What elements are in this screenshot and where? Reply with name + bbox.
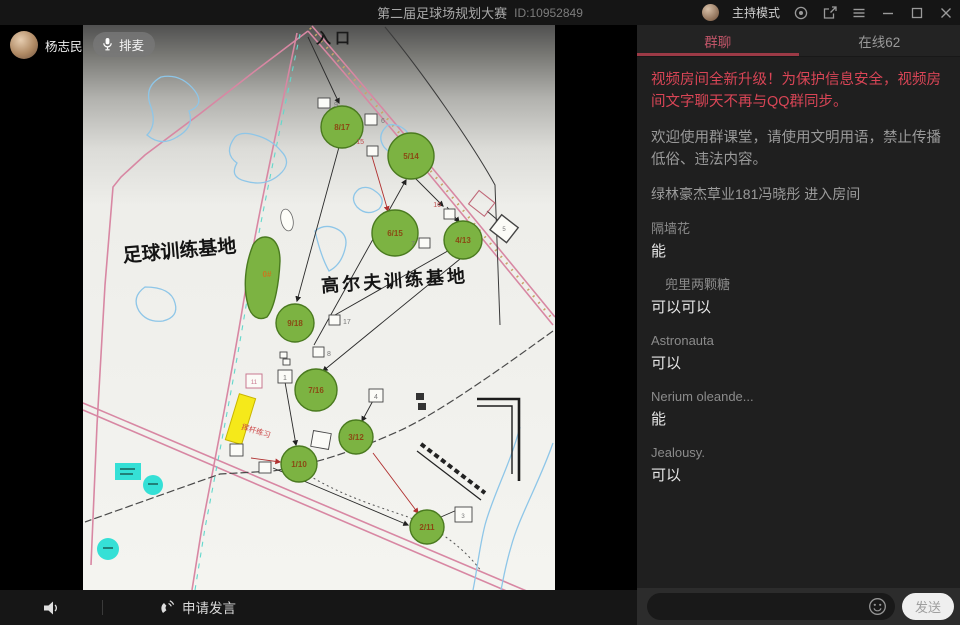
tee-label: 6 [381,118,385,125]
maximize-icon[interactable] [909,5,925,21]
hole-label: 6/15 [387,229,403,238]
host-mode-label: 主持模式 [732,4,780,21]
hole-label: 3/12 [348,433,364,442]
chat-message: Nerium oleande... 能 [651,389,946,429]
tee-label: 9 [334,102,338,109]
speaker-icon[interactable] [42,599,60,617]
join-event-message: 绿林豪杰草业181冯晓彤 进入房间 [651,185,946,203]
tab-online-label: 在线62 [858,31,900,51]
chat-text: 可以 [651,466,946,485]
hole-label: 8/17 [334,123,350,132]
send-button[interactable]: 发送 [902,593,954,620]
tab-group-chat[interactable]: 群聊 [637,25,799,56]
chat-text: 能 [651,410,946,429]
tab-group-chat-label: 群聊 [704,31,731,51]
divider [102,600,103,615]
tee-label: 16 [433,202,441,209]
chat-input-bar: 发送 [637,588,960,625]
chat-message: Astronauta 可以 [651,333,946,373]
hole-label: 9/18 [287,319,303,328]
emoji-icon[interactable] [868,597,887,616]
presenter-avatar [10,31,38,59]
tab-online-members[interactable]: 在线62 [799,25,960,56]
window-title: 第二届足球场规划大赛 [377,3,507,22]
active-tab-underline [637,53,799,56]
mic-queue-badge[interactable]: 排麦 [93,32,155,57]
presenter-info: 杨志民 [10,31,83,59]
microphone-icon [101,37,114,52]
title-bar: 第二届足球场规划大赛 ID:10952849 主持模式 [0,0,960,25]
request-speak-label: 申请发言 [182,597,236,617]
chat-text: 可以 [651,354,946,373]
tee-label: 7 [411,241,415,248]
hole-label: 0# [263,270,272,279]
chat-text: 能 [651,242,946,261]
video-stage: 杨志民 排麦 [0,25,637,590]
share-icon[interactable] [822,5,838,21]
hole-label: 7/16 [308,386,324,395]
raise-hand-phone-icon [158,599,175,616]
tee-label: 1 [283,375,287,382]
chat-text: 可以可以 [651,298,946,317]
site-plan-map: 挥杆练习 8/17 5/14 6/15 4/13 0# [83,25,555,590]
tee-label: 15 [356,139,364,146]
chat-username: Nerium oleande... [651,389,946,405]
tee-label: 8 [327,351,331,358]
minimize-icon[interactable] [880,5,896,21]
menu-icon[interactable] [851,5,867,21]
hole-label: 5/14 [403,152,419,161]
mic-queue-label: 排麦 [119,35,144,54]
system-notice: 视频房间全新升级！为保护信息安全，视频房间文字聊天不再与QQ群同步。 [651,69,946,113]
chat-input[interactable] [647,593,895,620]
tee-label: 11 [251,380,258,386]
chat-tab-bar: 群聊 在线62 [637,25,960,57]
entrance-label: 入口 [316,30,354,47]
request-speak-button[interactable]: 申请发言 [158,597,236,617]
chat-message-list[interactable]: 视频房间全新升级！为保护信息安全，视频房间文字聊天不再与QQ群同步。 欢迎使用群… [637,57,960,588]
chat-message: 隔墙花 能 [651,221,946,261]
close-icon[interactable] [938,5,954,21]
chat-username: 隔墙花 [651,221,946,237]
presenter-name: 杨志民 [45,36,83,55]
hole-label: 1/10 [291,460,307,469]
control-bar: 申请发言 [0,590,637,625]
chat-panel: 群聊 在线62 视频房间全新升级！为保护信息安全，视频房间文字聊天不再与QQ群同… [637,25,960,625]
host-avatar [702,4,719,21]
window-title-group: 第二届足球场规划大赛 ID:10952849 [377,0,583,25]
record-icon[interactable] [793,5,809,21]
chat-username: Jealousy. [651,445,946,461]
chat-username: 兜里两颗糖 [651,277,946,293]
room-id: ID:10952849 [514,6,583,20]
hole-label: 4/13 [455,236,471,245]
tee-label: 4 [374,394,378,401]
chat-message: 兜里两颗糖 可以可以 [651,277,946,317]
shared-screen-video: 挥杆练习 8/17 5/14 6/15 4/13 0# [83,25,555,590]
tee-label: 17 [343,319,351,326]
chat-username: Astronauta [651,333,946,349]
chat-message: Jealousy. 可以 [651,445,946,485]
hole-label: 2/11 [419,523,435,532]
welcome-message: 欢迎使用群课堂，请使用文明用语，禁止传播低俗、违法内容。 [651,127,946,171]
app-window: 第二届足球场规划大赛 ID:10952849 主持模式 [0,0,960,625]
